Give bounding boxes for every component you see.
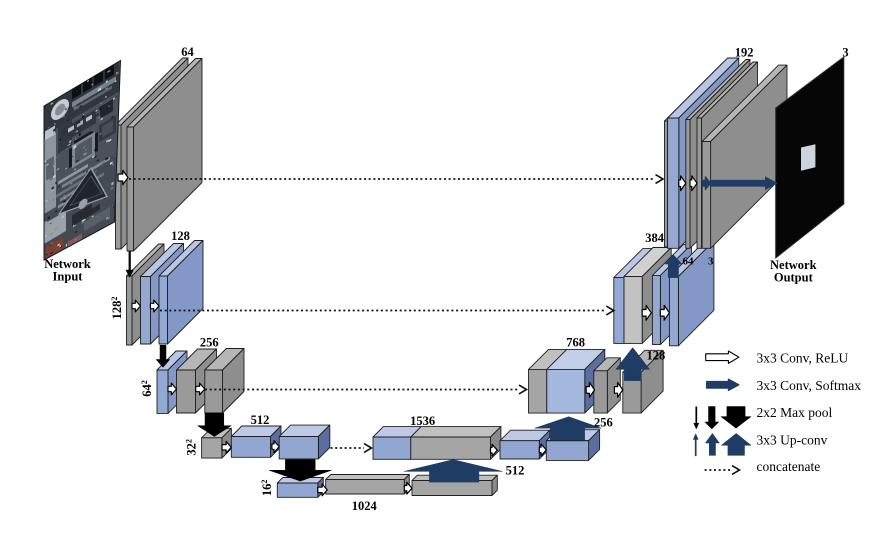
svg-text:384: 384 [645,231,665,245]
svg-text:768: 768 [566,336,585,350]
svg-text:3x3 Up-conv: 3x3 Up-conv [757,433,828,448]
svg-text:1024: 1024 [352,499,378,513]
svg-text:Output: Output [774,271,814,285]
svg-text:128: 128 [647,349,666,363]
svg-text:3x3 Conv, ReLU: 3x3 Conv, ReLU [757,351,849,366]
svg-text:3: 3 [842,46,848,60]
svg-text:3x3 Conv, Softmax: 3x3 Conv, Softmax [757,378,862,393]
svg-text:Input: Input [53,270,84,284]
svg-text:1282: 1282 [110,297,124,320]
svg-text:2x2 Max pool: 2x2 Max pool [757,405,833,420]
svg-text:256: 256 [200,336,219,350]
svg-text:3: 3 [708,256,714,268]
svg-text:128: 128 [171,229,190,243]
svg-text:642: 642 [140,380,154,397]
svg-text:162: 162 [260,480,274,497]
svg-text:256: 256 [594,416,613,430]
svg-text:322: 322 [185,439,199,456]
svg-text:64: 64 [181,45,194,59]
svg-text:1536: 1536 [410,414,435,428]
svg-text:64: 64 [683,256,695,268]
svg-text:512: 512 [251,413,270,427]
svg-text:512: 512 [506,464,525,478]
svg-text:192: 192 [735,46,754,60]
svg-text:concatenate: concatenate [757,459,821,474]
